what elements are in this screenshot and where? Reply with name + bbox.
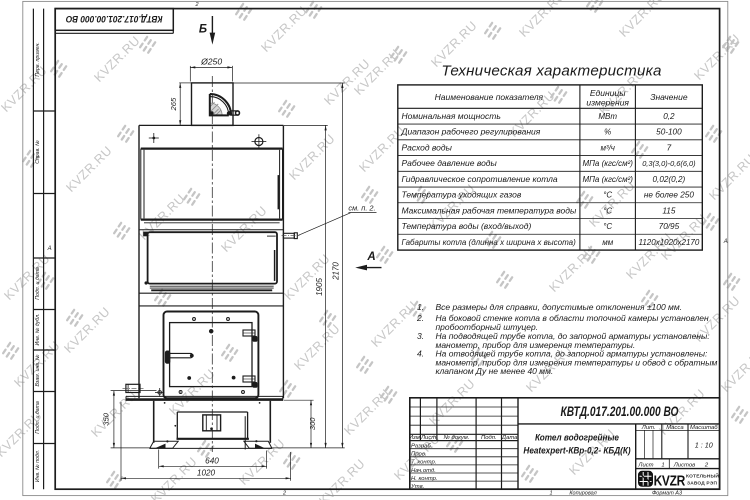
svg-text:Значение: Значение: [650, 92, 688, 102]
svg-text:№ докум.: № докум.: [444, 434, 470, 441]
svg-text:°С: °С: [603, 191, 612, 200]
svg-text:Гидравлическое сопротивление к: Гидравлическое сопротивление котла: [402, 174, 558, 184]
svg-text:Рабочее давление воды: Рабочее давление воды: [402, 158, 498, 168]
svg-text:Температура уходящих газов: Температура уходящих газов: [402, 190, 522, 200]
svg-text:Техническая характеристика: Техническая характеристика: [441, 63, 661, 80]
svg-text:КВТД.017.201.00.000 ВО: КВТД.017.201.00.000 ВО: [561, 404, 680, 420]
svg-text:KVZR.RU: KVZR.RU: [61, 304, 112, 355]
svg-text:350: 350: [102, 412, 111, 425]
svg-text:°С: °С: [603, 222, 612, 231]
svg-text:KVZR.RU: KVZR.RU: [236, 436, 287, 487]
svg-text:Инв. № подл.: Инв. № подл.: [35, 450, 41, 482]
svg-text:KVZR.RU: KVZR.RU: [426, 376, 477, 427]
svg-text:А: А: [723, 239, 728, 245]
svg-text:3.: 3.: [417, 331, 424, 341]
svg-text:2: 2: [282, 491, 286, 497]
svg-text:А: А: [47, 246, 52, 252]
svg-text:Пров.: Пров.: [411, 452, 427, 458]
svg-text:KVZR.RU: KVZR.RU: [218, 203, 269, 254]
svg-text:2: 2: [194, 2, 198, 8]
svg-text:Габариты котла (длинна х ширин: Габариты котла (длинна х ширина х высота…: [402, 238, 577, 247]
svg-text:Копировал: Копировал: [569, 491, 596, 497]
svg-text:измерения: измерения: [586, 97, 629, 107]
svg-text:1.: 1.: [417, 302, 424, 312]
svg-text:KVZR.RU: KVZR.RU: [0, 63, 50, 114]
svg-text:KVZR.RU: KVZR.RU: [316, 456, 367, 500]
svg-text:Максимальная рабочая температу: Максимальная рабочая температура воды: [402, 205, 577, 215]
svg-text:KVZR.RU: KVZR.RU: [281, 251, 332, 302]
svg-text:7: 7: [667, 144, 672, 153]
svg-text:Формат А3: Формат А3: [652, 491, 683, 497]
svg-text:KVZR.RU: KVZR.RU: [291, 321, 342, 372]
svg-text:МПа (кгс/см²): МПа (кгс/см²): [582, 175, 633, 184]
svg-text:см. п. 2.: см. п. 2.: [348, 203, 375, 212]
svg-text:Утв.: Утв.: [410, 484, 424, 490]
svg-text:Подп. и дата: Подп. и дата: [35, 267, 41, 300]
svg-text:KVZR.RU: KVZR.RU: [166, 366, 217, 417]
svg-text:Дата: Дата: [501, 435, 518, 441]
svg-text:640: 640: [205, 456, 219, 465]
svg-text:Справ. №: Справ. №: [35, 140, 41, 164]
svg-text:1120х1020х2170: 1120х1020х2170: [639, 238, 700, 247]
svg-text:ЗАВОД РЭП: ЗАВОД РЭП: [687, 481, 717, 487]
svg-text:KVZR.RU: KVZR.RU: [341, 386, 392, 437]
svg-text:Лист: Лист: [637, 462, 653, 468]
svg-text:70/95: 70/95: [659, 222, 680, 231]
svg-text:KVZR.RU: KVZR.RU: [691, 31, 742, 82]
svg-text:клапаном Ду не менее 40 мм.: клапаном Ду не менее 40 мм.: [436, 366, 554, 376]
svg-text:Инв. № дубл.: Инв. № дубл.: [35, 314, 41, 346]
svg-text:КОТЕЛЬНЫЙ: КОТЕЛЬНЫЙ: [686, 472, 719, 480]
svg-text:Нач.отд.: Нач.отд.: [411, 468, 436, 474]
svg-text:Перв. примен.: Перв. примен.: [35, 42, 41, 76]
svg-text:0,02(0,2): 0,02(0,2): [653, 175, 686, 184]
svg-text:KVZR.RU: KVZR.RU: [91, 33, 142, 84]
svg-text:Лит.: Лит.: [641, 425, 656, 431]
svg-text:Взам. инв. №: Взам. инв. №: [35, 354, 41, 386]
svg-text:МВт: МВт: [598, 112, 617, 121]
svg-text:2.: 2.: [416, 313, 424, 323]
svg-text:Ø250: Ø250: [200, 56, 222, 66]
svg-text:2170: 2170: [332, 262, 341, 281]
svg-text:0,3(3,0)-0,6(6,0): 0,3(3,0)-0,6(6,0): [642, 159, 696, 168]
svg-text:Т. контр.: Т. контр.: [411, 460, 436, 466]
svg-text:Листов: Листов: [673, 462, 695, 468]
svg-text:0,2: 0,2: [663, 112, 675, 121]
svg-text:Б: Б: [199, 24, 207, 36]
svg-text:1 : 10: 1 : 10: [695, 441, 713, 450]
svg-text:2: 2: [704, 462, 709, 468]
svg-text:А: А: [366, 251, 375, 263]
svg-text:KVZR.RU: KVZR.RU: [148, 454, 199, 500]
svg-text:KVZR.RU: KVZR.RU: [258, 3, 309, 54]
svg-text:МПа (кгс/см²): МПа (кгс/см²): [582, 159, 633, 168]
svg-text:Номинальная мощность: Номинальная мощность: [402, 111, 501, 121]
svg-text:KVZR.RU: KVZR.RU: [63, 143, 114, 194]
svg-text:КВТД.017.201.00.000 ВО: КВТД.017.201.00.000 ВО: [66, 14, 163, 25]
svg-text:Наименование показателя: Наименование показателя: [435, 92, 544, 102]
svg-text:KVZR.RU: KVZR.RU: [718, 343, 750, 394]
svg-text:Температура воды (вход/выход): Температура воды (вход/выход): [402, 221, 532, 231]
svg-text:Heatexpert-КВр-0,2- КБД(К): Heatexpert-КВр-0,2- КБД(К): [523, 445, 630, 456]
svg-text:KVZR.RU: KVZR.RU: [516, 0, 567, 40]
svg-text:Котел водогрейные: Котел водогрейные: [535, 432, 619, 443]
svg-text:1: 1: [549, 491, 552, 497]
svg-text:4.: 4.: [417, 349, 424, 359]
svg-text:265: 265: [169, 97, 178, 111]
svg-text:KVZR: KVZR: [654, 472, 686, 489]
svg-text:Подп. и дата: Подп. и дата: [35, 401, 41, 434]
svg-text:300: 300: [308, 417, 317, 430]
svg-text:KVZR.RU: KVZR.RU: [286, 131, 337, 182]
svg-text:KVZR.RU: KVZR.RU: [1, 251, 52, 302]
svg-text:Разраб.: Разраб.: [411, 444, 432, 450]
svg-text:Масса: Масса: [666, 425, 684, 431]
svg-text:KVZR.RU: KVZR.RU: [546, 243, 597, 294]
svg-text:KVZR.RU: KVZR.RU: [368, 298, 419, 349]
svg-text:Все размеры для справки, допус: Все размеры для справки, допустимые откл…: [436, 302, 683, 312]
svg-text:не более 250: не более 250: [644, 191, 694, 200]
svg-text:KVZR.RU: KVZR.RU: [356, 123, 407, 174]
svg-text:Н. контр.: Н. контр.: [411, 476, 438, 482]
svg-text:Расход воды: Расход воды: [402, 143, 453, 153]
svg-text:115: 115: [662, 206, 675, 215]
svg-text:50-100: 50-100: [656, 128, 682, 137]
svg-text:Масштаб: Масштаб: [690, 425, 718, 431]
svg-text:KVZR.RU: KVZR.RU: [616, 0, 667, 40]
svg-text:%: %: [604, 128, 611, 137]
svg-text:Лист: Лист: [420, 435, 436, 441]
svg-text:Изм.: Изм.: [409, 435, 422, 441]
svg-text:м³/ч: м³/ч: [600, 144, 615, 153]
svg-text:мм: мм: [602, 238, 613, 247]
svg-text:1020: 1020: [197, 468, 216, 477]
svg-text:Подп.: Подп.: [481, 435, 497, 441]
svg-text:1: 1: [661, 462, 664, 468]
svg-text:°С: °С: [603, 206, 612, 215]
svg-text:Диапазон рабочего регулировани: Диапазон рабочего регулирования: [401, 127, 541, 137]
svg-text:1905: 1905: [315, 278, 324, 296]
